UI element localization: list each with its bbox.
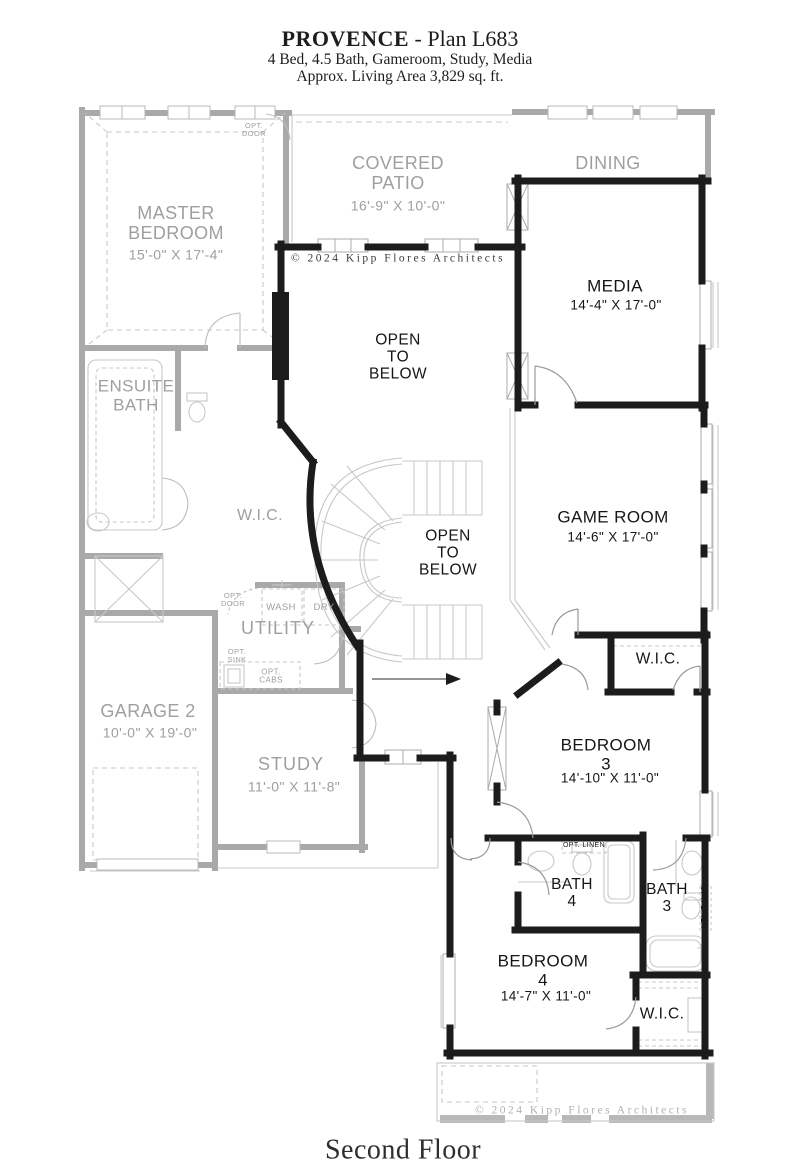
opt-linen-label-bath3: OPT. LINEN	[698, 885, 706, 928]
opt-sink-label: OPT. SINK	[227, 648, 246, 664]
stair-direction-arrow	[372, 673, 461, 685]
open-to-below-stair-label: OPEN TO BELOW	[419, 527, 477, 578]
opt-door-label-utility: OPT. DOOR	[221, 592, 245, 608]
plan-features: 4 Bed, 4.5 Bath, Gameroom, Study, Media	[0, 51, 800, 69]
room-dims-bedroom-4: 14'-7" X 11'-0"	[501, 990, 591, 1005]
plan-title: PROVENCE - Plan L683	[0, 26, 800, 52]
room-dims-garage-2: 10'-0" X 19'-0"	[103, 725, 197, 740]
room-label-bedroom-4: BEDROOM 4	[498, 952, 589, 989]
room-dims-covered-patio: 16'-9" X 10'-0"	[351, 198, 445, 213]
room-label-utility: UTILITY	[241, 619, 315, 639]
room-label-wic-bed3: W.I.C.	[636, 650, 681, 667]
plan-area: Approx. Living Area 3,829 sq. ft.	[0, 68, 800, 86]
room-dims-bedroom-3: 14'-10" X 11'-0"	[561, 772, 659, 787]
wash-label: WASH	[266, 603, 296, 613]
plan-name: PROVENCE	[282, 26, 409, 51]
wall-pier	[272, 292, 289, 380]
dry-label: DRY	[313, 603, 334, 613]
room-label-covered-patio: COVERED PATIO	[352, 154, 444, 194]
floor-plan-page: PROVENCE - Plan L683 4 Bed, 4.5 Bath, Ga…	[0, 0, 800, 1172]
room-dims-game-room: 14'-6" X 17'-0"	[567, 531, 658, 546]
room-label-master-wic: W.I.C.	[237, 507, 283, 525]
opt-cabs-label: OPT. CABS	[259, 669, 282, 686]
room-label-ensuite-bath: ENSUITE BATH	[98, 377, 174, 414]
room-dims-media: 14'-4" X 17'-0"	[570, 299, 661, 314]
room-label-game-room: GAME ROOM	[557, 509, 668, 528]
room-label-garage-2: GARAGE 2	[100, 702, 195, 722]
copyright-top: © 2024 Kipp Flores Architects	[291, 253, 505, 266]
room-label-study: STUDY	[258, 755, 324, 775]
copyright-bottom: © 2024 Kipp Flores Architects	[475, 1105, 689, 1118]
room-label-bath-4: BATH 4	[551, 876, 593, 910]
room-dims-master-bedroom: 15'-0" X 17'-4"	[129, 247, 223, 262]
room-label-wic-bed4: W.I.C.	[640, 1005, 685, 1022]
opt-linen-label-bath4: OPT. LINEN	[563, 842, 605, 850]
room-label-bath-3: BATH 3	[646, 881, 688, 915]
plan-number: - Plan L683	[409, 26, 518, 51]
room-label-dining: DINING	[575, 154, 640, 174]
open-to-below-upper-label: OPEN TO BELOW	[369, 331, 427, 382]
opt-door-label-master: OPT. DOOR	[242, 122, 266, 138]
room-label-bedroom-3: BEDROOM 3	[561, 736, 652, 773]
room-dims-study: 11'-0" X 11'-8"	[248, 779, 340, 794]
room-label-master-bedroom: MASTER BEDROOM	[128, 204, 224, 244]
floor-label: Second Floor	[325, 1136, 481, 1167]
room-label-media: MEDIA	[587, 278, 643, 297]
